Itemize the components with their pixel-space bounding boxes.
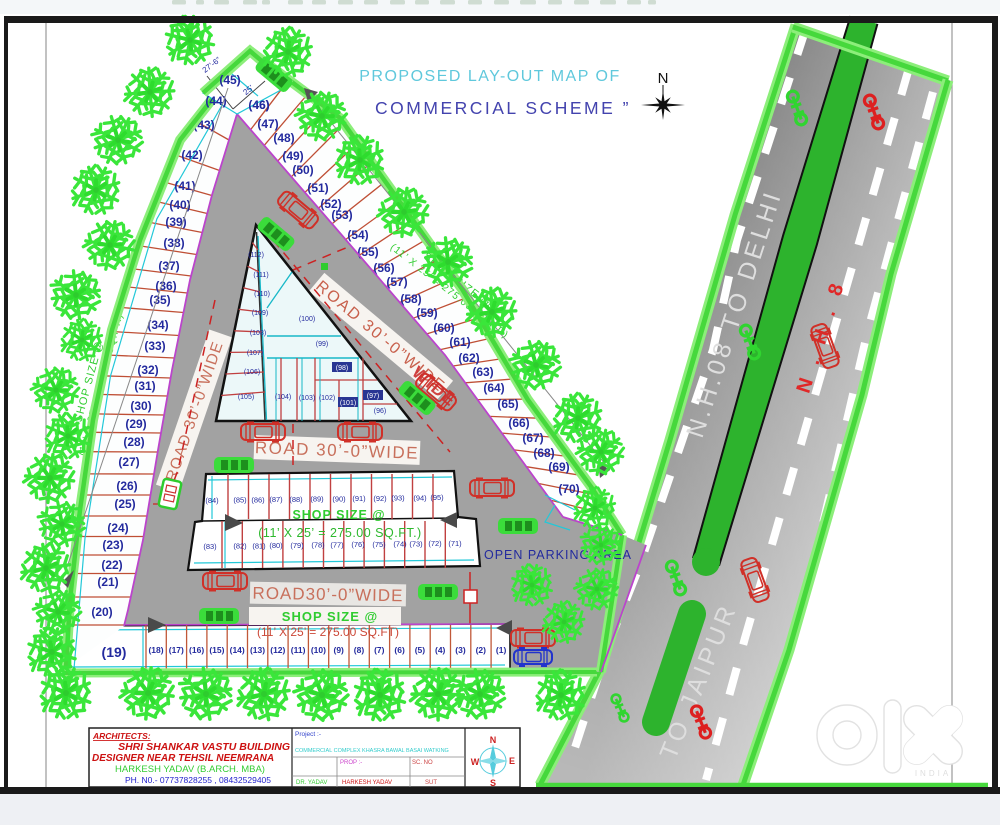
svg-text:(84): (84) xyxy=(205,496,219,505)
svg-text:(11’ X 25’ = 275.00 SQ.FT.): (11’ X 25’ = 275.00 SQ.FT.) xyxy=(258,526,421,540)
svg-text:(89): (89) xyxy=(310,495,324,504)
svg-text:(75): (75) xyxy=(372,540,386,549)
svg-text:SHRI SHANKAR VASTU BUILDING: SHRI SHANKAR VASTU BUILDING xyxy=(118,741,290,753)
svg-text:(88): (88) xyxy=(289,495,303,504)
svg-text:N: N xyxy=(490,735,497,745)
svg-text:DR. YADAV: DR. YADAV xyxy=(296,780,327,786)
svg-text:PROPOSED LAY-OUT MAP OF: PROPOSED LAY-OUT MAP OF xyxy=(359,68,621,85)
svg-text:(87): (87) xyxy=(269,495,283,504)
svg-text:(42): (42) xyxy=(181,148,202,162)
svg-text:(105): (105) xyxy=(238,394,254,401)
svg-text:(79): (79) xyxy=(290,541,304,550)
svg-text:(24): (24) xyxy=(107,521,128,535)
svg-text:SUT: SUT xyxy=(425,780,437,786)
svg-text:(61): (61) xyxy=(449,335,470,349)
svg-text:(2): (2) xyxy=(476,645,487,655)
svg-text:(67): (67) xyxy=(522,431,543,445)
svg-text:(71): (71) xyxy=(448,539,462,548)
svg-text:(59): (59) xyxy=(416,306,437,320)
svg-text:(66): (66) xyxy=(508,416,529,430)
svg-text:HARKESH YADAV: HARKESH YADAV xyxy=(342,780,392,786)
svg-text:(54): (54) xyxy=(347,228,368,242)
svg-text:(56): (56) xyxy=(373,261,394,275)
svg-text:(98): (98) xyxy=(336,365,348,372)
svg-text:(10): (10) xyxy=(311,645,326,655)
svg-text:(15): (15) xyxy=(209,645,224,655)
svg-text:HARKESH YADAV (B.ARCH. MBA): HARKESH YADAV (B.ARCH. MBA) xyxy=(115,764,265,775)
svg-text:(86): (86) xyxy=(251,495,265,504)
svg-text:(64): (64) xyxy=(483,381,504,395)
svg-text:(65): (65) xyxy=(497,397,518,411)
svg-text:ARCHITECTS:: ARCHITECTS: xyxy=(92,731,151,741)
svg-text:(46): (46) xyxy=(248,98,269,112)
svg-text:(6): (6) xyxy=(394,645,405,655)
svg-text:(91): (91) xyxy=(352,494,366,503)
svg-text:(83): (83) xyxy=(203,542,217,551)
svg-text:PH. N0.- 07737828255 , 0843252: PH. N0.- 07737828255 , 08432529405 xyxy=(125,775,271,785)
svg-text:(18): (18) xyxy=(148,645,163,655)
svg-text:(100): (100) xyxy=(299,316,315,323)
svg-text:(93): (93) xyxy=(391,494,405,503)
svg-text:(99): (99) xyxy=(316,341,328,348)
svg-text:(72): (72) xyxy=(428,539,442,548)
svg-text:(96): (96) xyxy=(374,408,386,415)
svg-text:(13): (13) xyxy=(250,645,265,655)
svg-text:(49): (49) xyxy=(282,149,303,163)
svg-text:(8): (8) xyxy=(354,645,365,655)
svg-text:(29): (29) xyxy=(125,417,146,431)
svg-text:(37): (37) xyxy=(158,259,179,273)
svg-text:(104): (104) xyxy=(275,394,291,401)
svg-text:(47): (47) xyxy=(257,117,278,131)
svg-text:(81): (81) xyxy=(252,541,266,550)
svg-text:(109): (109) xyxy=(252,310,268,317)
svg-text:(80): (80) xyxy=(269,541,283,550)
svg-text:SHOP SIZE @: SHOP SIZE @ xyxy=(282,609,378,624)
svg-text:(26): (26) xyxy=(116,479,137,493)
svg-text:INDIA: INDIA xyxy=(915,769,951,778)
svg-text:COMMERCIAL COMPLEX KHASRA BAWA: COMMERCIAL COMPLEX KHASRA BAWAL BASAI WA… xyxy=(295,748,449,754)
svg-text:(53): (53) xyxy=(331,208,352,222)
svg-text:(101): (101) xyxy=(340,400,356,407)
svg-text:(36): (36) xyxy=(155,279,176,293)
svg-text:(110): (110) xyxy=(254,291,270,298)
svg-text:(103): (103) xyxy=(299,395,315,402)
svg-text:(28): (28) xyxy=(123,435,144,449)
svg-text:(9): (9) xyxy=(334,645,345,655)
svg-text:(32): (32) xyxy=(137,363,158,377)
svg-text:SC. NO: SC. NO xyxy=(412,760,433,766)
svg-text:(92): (92) xyxy=(373,494,387,503)
svg-text:ROAD30’-0”WIDE: ROAD30’-0”WIDE xyxy=(252,584,403,606)
svg-text:(35): (35) xyxy=(149,293,170,307)
svg-text:(112): (112) xyxy=(248,252,264,259)
svg-text:(97): (97) xyxy=(367,393,379,400)
svg-text:(5): (5) xyxy=(415,645,426,655)
svg-text:(95): (95) xyxy=(430,493,444,502)
svg-text:(3): (3) xyxy=(455,645,466,655)
svg-text:(74): (74) xyxy=(393,540,407,549)
svg-text:(63): (63) xyxy=(472,365,493,379)
svg-text:(111): (111) xyxy=(253,272,268,279)
svg-text:(60): (60) xyxy=(433,321,454,335)
svg-text:(106): (106) xyxy=(244,369,260,376)
svg-text:E: E xyxy=(509,756,515,766)
svg-text:(90): (90) xyxy=(332,494,346,503)
svg-text:(69): (69) xyxy=(548,460,569,474)
svg-text:(78): (78) xyxy=(311,541,325,550)
svg-text:PROP :-: PROP :- xyxy=(340,760,362,766)
svg-text:(25): (25) xyxy=(114,497,135,511)
svg-text:(1): (1) xyxy=(496,645,507,655)
svg-text:(85): (85) xyxy=(233,496,247,505)
svg-text:(22): (22) xyxy=(101,558,122,572)
svg-text:(41): (41) xyxy=(174,179,195,193)
svg-text:(11’ X 25’ = 275.00 SQ.FT): (11’ X 25’ = 275.00 SQ.FT) xyxy=(257,625,399,639)
svg-text:(50): (50) xyxy=(292,163,313,177)
svg-text:(94): (94) xyxy=(413,493,427,502)
svg-text:(11): (11) xyxy=(291,645,306,655)
svg-text:(16): (16) xyxy=(189,645,204,655)
svg-text:(20): (20) xyxy=(91,605,112,619)
svg-text:(27): (27) xyxy=(118,455,139,469)
svg-text:(33): (33) xyxy=(144,339,165,353)
svg-text:(57): (57) xyxy=(386,275,407,289)
svg-text:N: N xyxy=(658,70,669,87)
svg-text:(102): (102) xyxy=(319,395,335,402)
svg-text:(76): (76) xyxy=(351,540,365,549)
svg-text:(82): (82) xyxy=(233,542,247,551)
svg-text:(4): (4) xyxy=(435,645,446,655)
svg-text:(14): (14) xyxy=(230,645,245,655)
svg-text:DESIGNER NEAR TEHSIL NEEMRANA: DESIGNER NEAR TEHSIL NEEMRANA xyxy=(92,753,274,764)
svg-text:(48): (48) xyxy=(273,131,294,145)
svg-text:(108): (108) xyxy=(250,330,266,337)
svg-text:COMMERCIAL SCHEME ”: COMMERCIAL SCHEME ” xyxy=(375,98,631,118)
svg-text:(45): (45) xyxy=(219,73,240,87)
svg-text:(107): (107) xyxy=(247,350,263,357)
svg-text:(73): (73) xyxy=(409,539,423,548)
svg-text:(70): (70) xyxy=(558,482,579,496)
svg-text:(30): (30) xyxy=(130,399,151,413)
svg-text:(31): (31) xyxy=(134,379,155,393)
svg-text:SHOP SIZE @: SHOP SIZE @ xyxy=(292,508,385,522)
svg-text:Project :-: Project :- xyxy=(295,731,321,738)
svg-text:(77): (77) xyxy=(330,540,344,549)
svg-text:(12): (12) xyxy=(270,645,285,655)
svg-text:S: S xyxy=(490,778,496,788)
svg-text:(23): (23) xyxy=(102,538,123,552)
svg-text:(51): (51) xyxy=(307,181,328,195)
svg-text:(17): (17) xyxy=(169,645,184,655)
svg-text:W: W xyxy=(471,757,480,767)
svg-text:(19): (19) xyxy=(102,644,127,660)
svg-text:(21): (21) xyxy=(97,575,118,589)
svg-text:(62): (62) xyxy=(458,351,479,365)
svg-text:(58): (58) xyxy=(400,292,421,306)
svg-text:(7): (7) xyxy=(374,645,385,655)
svg-text:(68): (68) xyxy=(533,446,554,460)
